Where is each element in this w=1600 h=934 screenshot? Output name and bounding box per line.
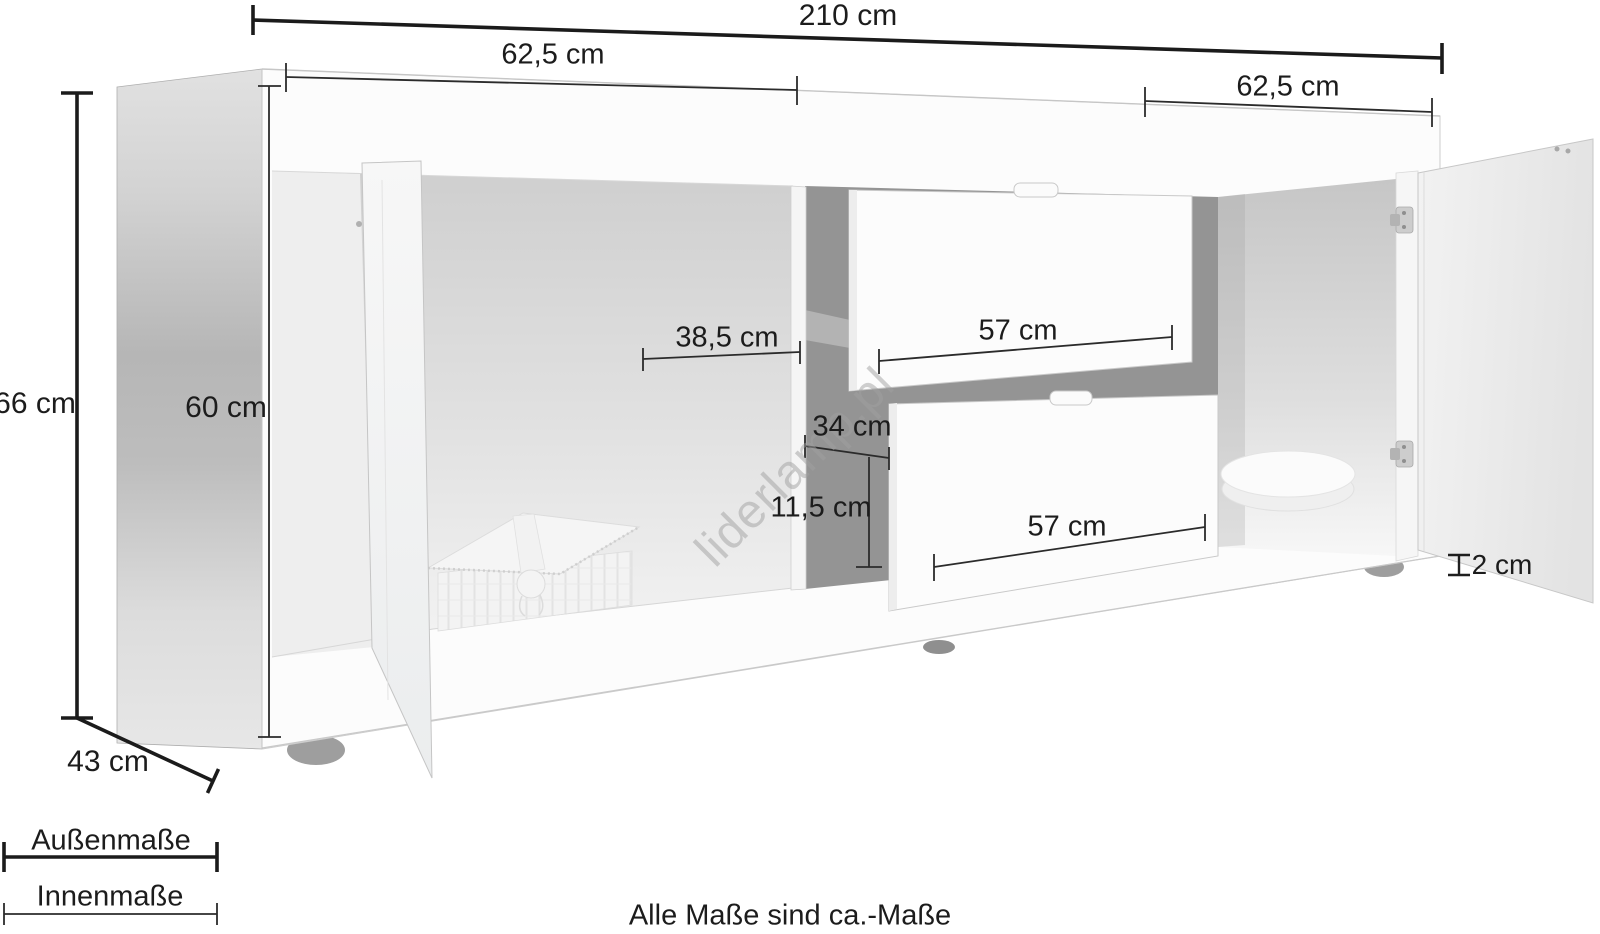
- dim-depth-label: 43 cm: [67, 747, 149, 777]
- bottom-drawer-handle: [1050, 391, 1092, 405]
- dim-middle-inner-width-label: 34 cm: [813, 413, 892, 442]
- right-door: [1418, 139, 1593, 603]
- dim-top-drawer-width-label: 57 cm: [979, 317, 1058, 346]
- cabinet-body: [117, 69, 1440, 749]
- dim-total-width-label: 210 cm: [799, 1, 897, 31]
- round-disc: [1221, 451, 1355, 511]
- dim-bottom-drawer-width-label: 57 cm: [1028, 513, 1107, 542]
- dim-panel-thickness-label: 2 cm: [1472, 551, 1533, 579]
- measurements-note: Alle Maße sind ca.-Maße: [629, 900, 951, 933]
- dimension-diagram: liderlamp.pl 210 cm 62,5 cm 62,5 cm 66 c…: [0, 0, 1600, 934]
- top-drawer-handle: [1014, 183, 1058, 197]
- dim-left-section-label: 62,5 cm: [501, 41, 604, 70]
- dim-outer-height-label: 66 cm: [0, 389, 76, 419]
- dim-left-inner-width-label: 38,5 cm: [675, 324, 778, 353]
- dim-right-section-label: 62,5 cm: [1236, 73, 1339, 102]
- legend-inner-label: Innenmaße: [37, 883, 184, 912]
- dim-drawer-inner-height-label: 11,5 cm: [770, 494, 871, 523]
- dim-inner-height-label: 60 cm: [185, 393, 267, 423]
- legend-outer-label: Außenmaße: [31, 827, 191, 856]
